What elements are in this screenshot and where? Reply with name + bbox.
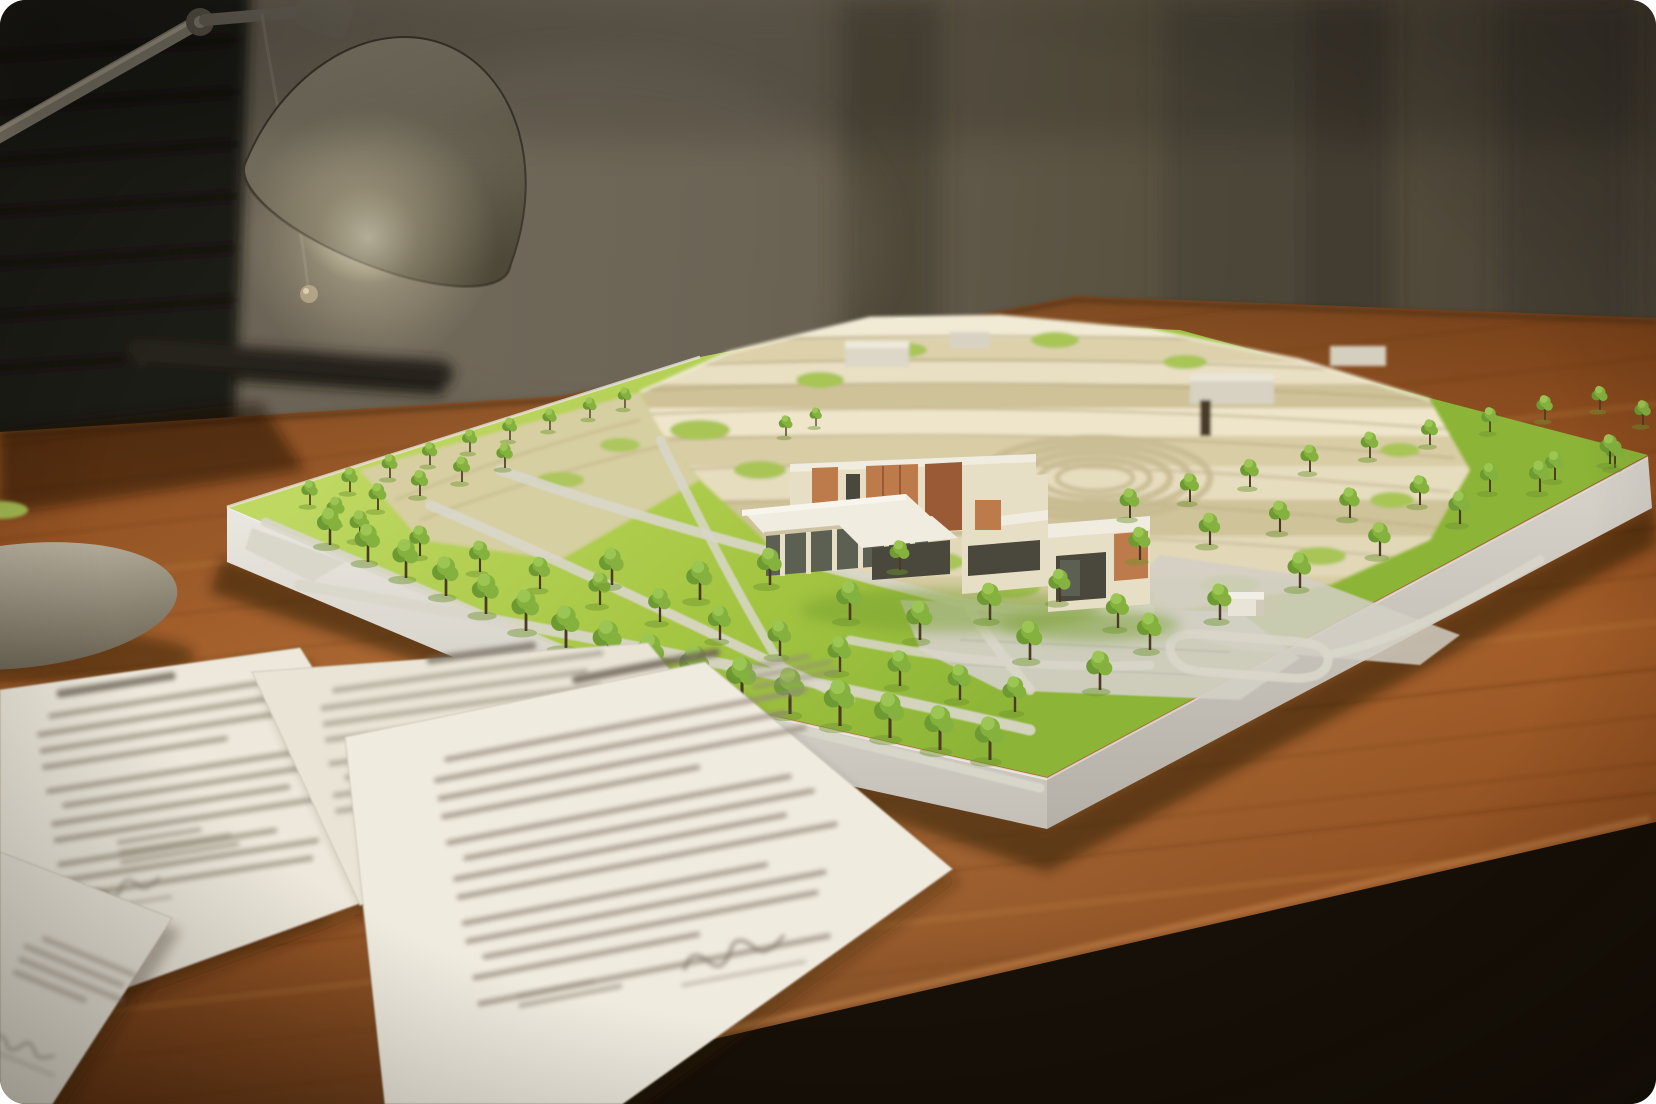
photo-frame: [0, 0, 1656, 1104]
vignette: [0, 0, 1656, 1104]
scene: [0, 0, 1656, 1104]
top-darkening: [0, 0, 1656, 140]
